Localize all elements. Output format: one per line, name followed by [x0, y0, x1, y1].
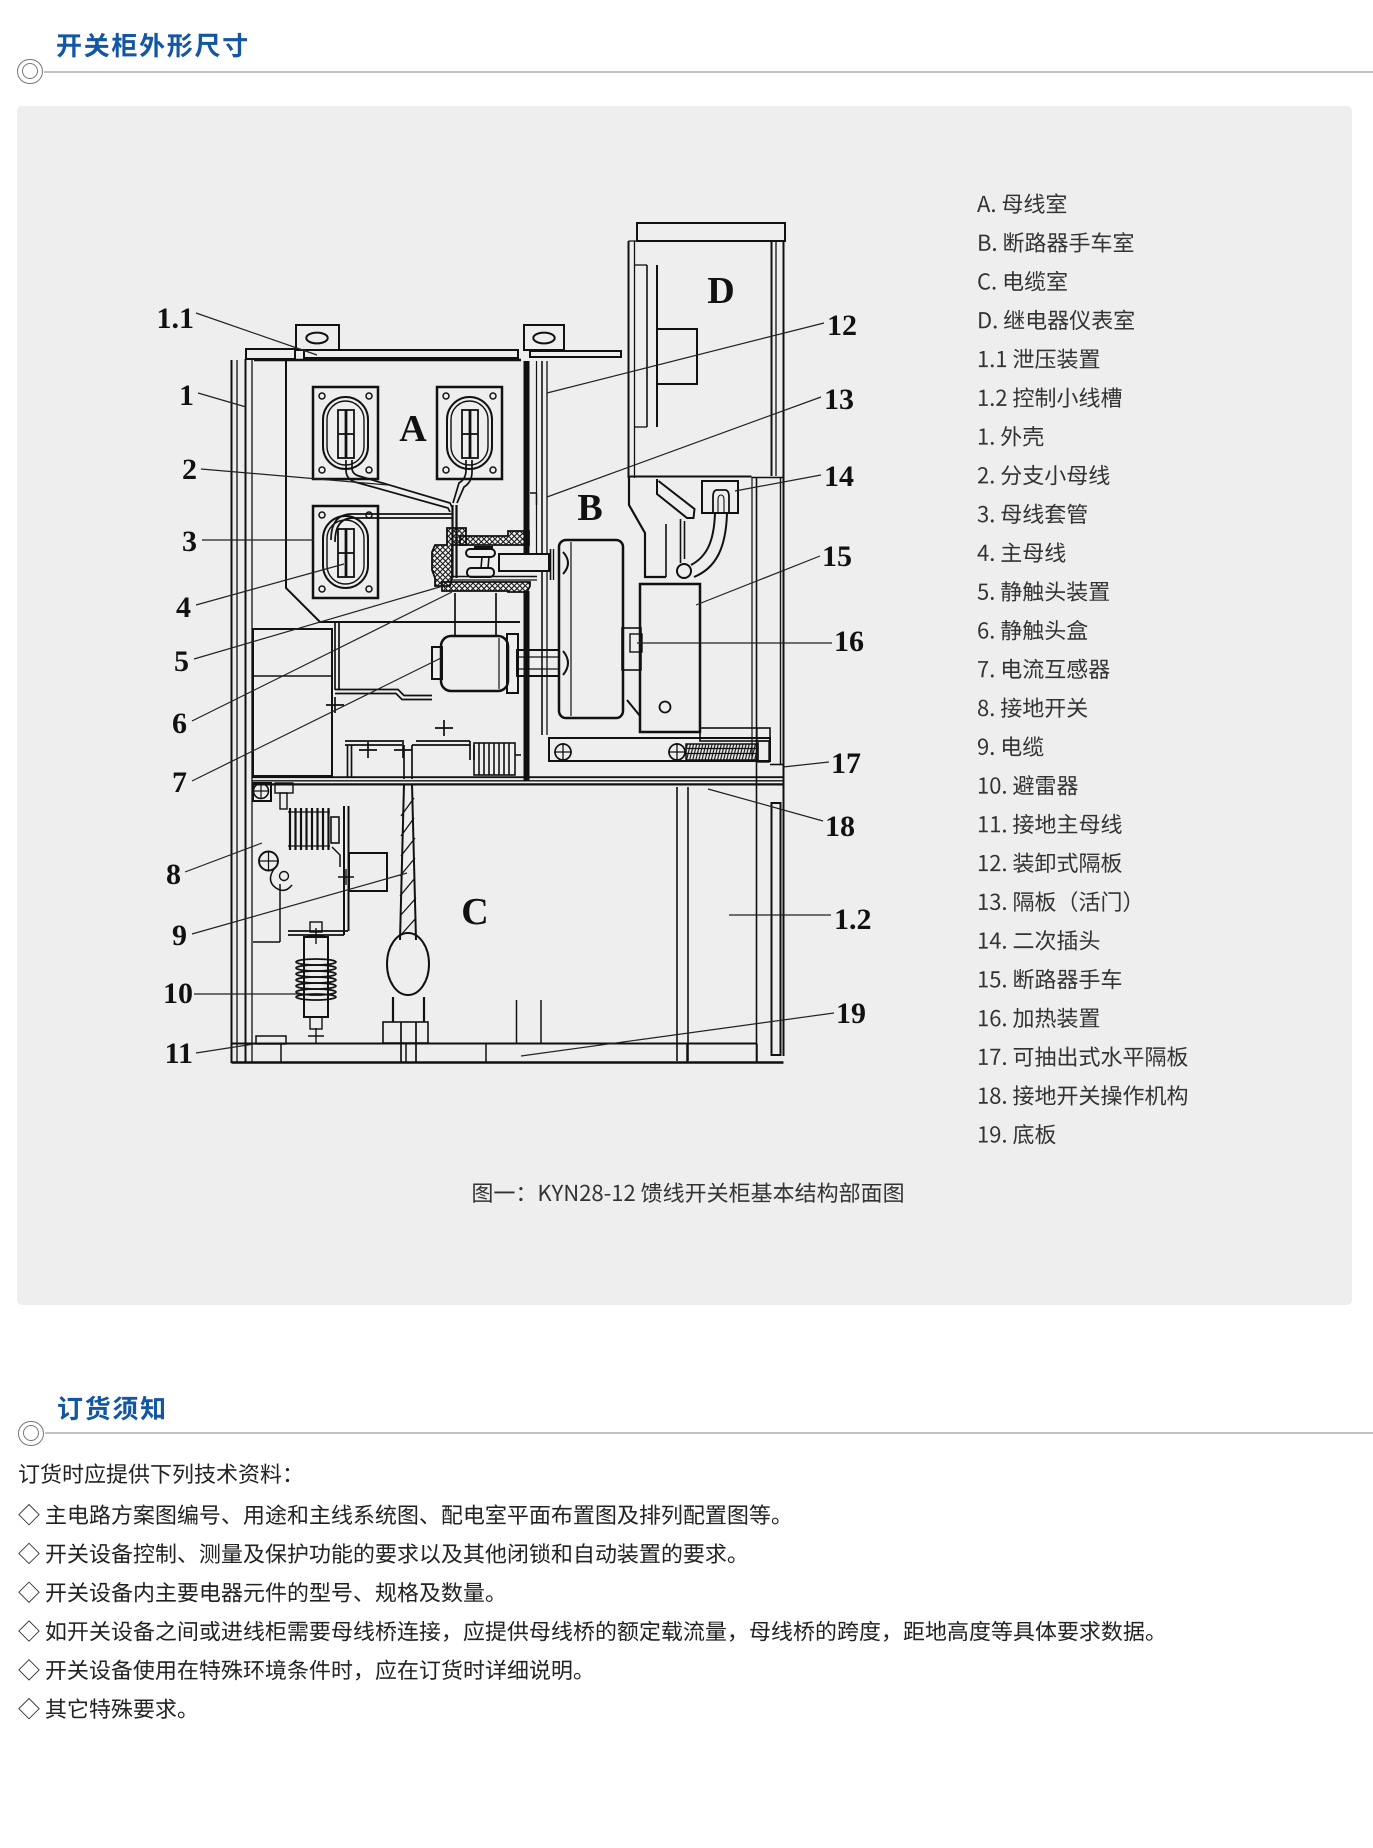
svg-text:4: 4 [176, 591, 191, 624]
svg-text:18: 18 [825, 810, 855, 843]
svg-text:15: 15 [822, 540, 852, 573]
svg-text:7: 7 [172, 766, 187, 799]
svg-text:10: 10 [163, 977, 193, 1010]
svg-text:16: 16 [834, 625, 864, 658]
svg-text:2: 2 [182, 453, 197, 486]
svg-text:17: 17 [831, 747, 861, 780]
svg-text:C: C [461, 891, 488, 933]
svg-text:14: 14 [824, 460, 854, 493]
svg-text:19: 19 [836, 997, 866, 1030]
svg-text:A: A [399, 408, 427, 450]
svg-text:5: 5 [174, 645, 189, 678]
svg-text:9: 9 [172, 919, 187, 952]
svg-text:3: 3 [182, 525, 197, 558]
svg-text:1.2: 1.2 [834, 903, 872, 936]
svg-text:11: 11 [165, 1037, 193, 1070]
svg-text:B: B [577, 487, 602, 529]
svg-text:8: 8 [166, 858, 181, 891]
svg-text:D: D [707, 270, 734, 312]
svg-text:1.1: 1.1 [157, 302, 195, 335]
svg-text:1: 1 [179, 379, 194, 412]
svg-text:12: 12 [827, 309, 857, 342]
svg-text:6: 6 [172, 707, 187, 740]
svg-text:13: 13 [824, 383, 854, 416]
